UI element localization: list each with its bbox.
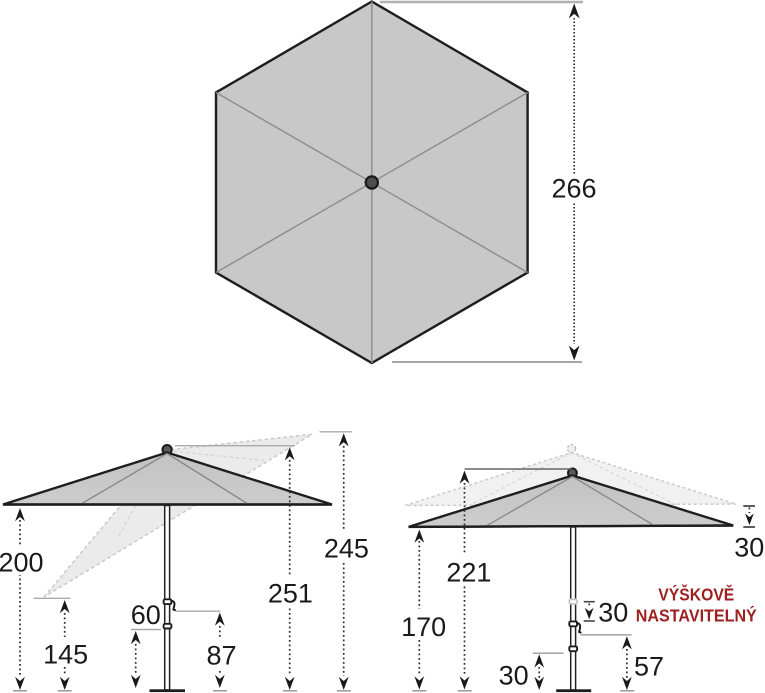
svg-text:245: 245 bbox=[324, 534, 369, 564]
svg-text:57: 57 bbox=[634, 652, 664, 682]
svg-text:221: 221 bbox=[446, 558, 491, 588]
svg-text:NASTAVITELNÝ: NASTAVITELNÝ bbox=[636, 605, 757, 626]
svg-text:VÝŠKOVĚ: VÝŠKOVĚ bbox=[658, 584, 734, 605]
svg-text:145: 145 bbox=[43, 640, 88, 670]
svg-text:251: 251 bbox=[268, 579, 313, 609]
svg-text:266: 266 bbox=[551, 174, 596, 204]
svg-text:87: 87 bbox=[206, 640, 236, 670]
svg-text:200: 200 bbox=[0, 548, 44, 578]
svg-text:30: 30 bbox=[734, 533, 764, 563]
svg-text:30: 30 bbox=[598, 598, 628, 628]
svg-text:30: 30 bbox=[499, 661, 529, 691]
svg-text:60: 60 bbox=[131, 600, 161, 630]
svg-text:170: 170 bbox=[401, 612, 446, 642]
